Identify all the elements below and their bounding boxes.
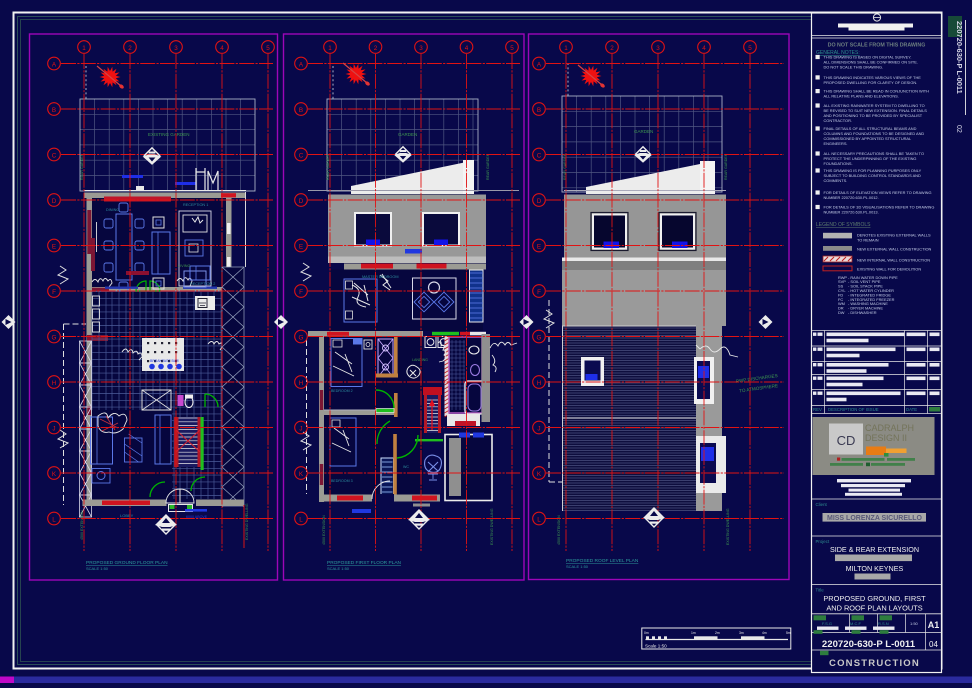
svg-text:4m: 4m bbox=[762, 631, 767, 635]
svg-text:SIDE & REAR EXTENSION: SIDE & REAR EXTENSION bbox=[830, 545, 919, 554]
svg-text:WC: WC bbox=[403, 465, 409, 469]
svg-text:COMMENTS.: COMMENTS. bbox=[824, 178, 848, 183]
svg-text:1: 1 bbox=[82, 45, 86, 52]
svg-text:NUMBER 220720.630.PL.0013.: NUMBER 220720.630.PL.0013. bbox=[824, 210, 879, 215]
svg-text:REAR GARDEN: REAR GARDEN bbox=[326, 153, 330, 180]
svg-text:REAR GARDEN: REAR GARDEN bbox=[724, 153, 728, 180]
svg-text:EXISTING DWELLING: EXISTING DWELLING bbox=[245, 503, 249, 540]
svg-text:GARDEN: GARDEN bbox=[634, 129, 653, 134]
svg-text:4: 4 bbox=[702, 45, 706, 52]
svg-text:REAR GARDEN: REAR GARDEN bbox=[80, 153, 84, 180]
svg-text:B: B bbox=[52, 107, 56, 114]
svg-text:EXISTING GARDEN: EXISTING GARDEN bbox=[148, 132, 190, 137]
svg-text:CONSTRUCTION: CONSTRUCTION bbox=[829, 658, 920, 669]
svg-text:1:50: 1:50 bbox=[910, 621, 919, 626]
svg-text:0m: 0m bbox=[644, 631, 649, 635]
svg-text:L: L bbox=[52, 517, 56, 524]
svg-text:CONTRACTOR.: CONTRACTOR. bbox=[824, 118, 852, 123]
svg-text:J: J bbox=[52, 426, 55, 433]
svg-text:SCALE 1:50: SCALE 1:50 bbox=[566, 564, 589, 569]
svg-text:R.S.N: R.S.N bbox=[878, 621, 889, 626]
svg-text:DATE: DATE bbox=[906, 407, 917, 412]
svg-text:ALL RELATIVE PLANS AND ELEVATI: ALL RELATIVE PLANS AND ELEVATIONS. bbox=[824, 94, 899, 99]
svg-text:BEDROOM 2: BEDROOM 2 bbox=[331, 389, 353, 393]
svg-text:04: 04 bbox=[929, 640, 938, 649]
svg-text:2: 2 bbox=[128, 45, 132, 52]
svg-text:2m: 2m bbox=[715, 631, 720, 635]
svg-text:MISS LORENZA SICURELLO: MISS LORENZA SICURELLO bbox=[827, 515, 923, 522]
svg-text:PROPOSED DWELLING FOR CLARITY: PROPOSED DWELLING FOR CLARITY OF DESIGN. bbox=[824, 80, 918, 85]
svg-text:H: H bbox=[52, 380, 57, 387]
svg-text:EXISTING DWELLING: EXISTING DWELLING bbox=[490, 508, 494, 545]
svg-text:F: F bbox=[52, 289, 56, 296]
svg-text:A1: A1 bbox=[928, 620, 940, 630]
svg-text:CD: CD bbox=[837, 433, 856, 448]
svg-text:NUMBER 220720.630.PL.0012.: NUMBER 220720.630.PL.0012. bbox=[824, 195, 879, 200]
svg-text:3m: 3m bbox=[739, 631, 744, 635]
svg-text:5m: 5m bbox=[786, 631, 791, 635]
svg-text:J: J bbox=[299, 426, 302, 433]
svg-text:C: C bbox=[537, 153, 542, 160]
svg-text:- DISHWASHER: - DISHWASHER bbox=[848, 310, 877, 315]
svg-text:H: H bbox=[299, 380, 304, 387]
svg-text:FOUNDATIONS.: FOUNDATIONS. bbox=[824, 161, 853, 166]
svg-text:2: 2 bbox=[610, 45, 614, 52]
svg-text:4500 EXTENSION: 4500 EXTENSION bbox=[80, 510, 84, 540]
svg-text:LOBBY: LOBBY bbox=[120, 513, 134, 518]
svg-text:M.C.F: M.C.F bbox=[850, 621, 861, 626]
svg-text:EXISTING DWELLING: EXISTING DWELLING bbox=[726, 508, 730, 545]
svg-text:1: 1 bbox=[328, 45, 332, 52]
svg-text:E: E bbox=[299, 244, 303, 251]
svg-text:4: 4 bbox=[465, 45, 469, 52]
svg-text:E: E bbox=[537, 244, 541, 251]
svg-text:B: B bbox=[537, 107, 541, 114]
svg-text:5: 5 bbox=[266, 45, 270, 52]
svg-text:D: D bbox=[537, 198, 542, 205]
svg-text:Scale 1:50: Scale 1:50 bbox=[645, 644, 667, 649]
svg-text:LANDING: LANDING bbox=[412, 358, 428, 362]
svg-text:DW: DW bbox=[838, 310, 845, 315]
svg-text:3: 3 bbox=[174, 45, 178, 52]
svg-text:LIVING: LIVING bbox=[178, 264, 190, 268]
svg-text:5: 5 bbox=[748, 45, 752, 52]
svg-text:3: 3 bbox=[656, 45, 660, 52]
svg-text:02: 02 bbox=[955, 125, 962, 133]
svg-text:G: G bbox=[52, 335, 57, 342]
svg-text:4500 EXTENSION: 4500 EXTENSION bbox=[557, 515, 561, 545]
svg-text:4500 EXTENSION: 4500 EXTENSION bbox=[322, 515, 326, 545]
svg-text:DO NOT SCALE THIS DRAWING.: DO NOT SCALE THIS DRAWING. bbox=[824, 65, 884, 70]
svg-text:F.S.G: F.S.G bbox=[822, 621, 832, 626]
svg-text:ENGINEERS.: ENGINEERS. bbox=[824, 141, 848, 146]
svg-text:G: G bbox=[537, 335, 542, 342]
svg-text:DO NOT SCALE FROM THIS DRAWING: DO NOT SCALE FROM THIS DRAWING bbox=[828, 43, 926, 49]
svg-text:J: J bbox=[537, 426, 540, 433]
svg-text:GARDEN: GARDEN bbox=[398, 132, 417, 137]
svg-text:G: G bbox=[299, 335, 304, 342]
svg-text:DESCRIPTION OF ISSUE: DESCRIPTION OF ISSUE bbox=[828, 407, 879, 412]
svg-text:EXISTING WALL FOR DEMOLITION: EXISTING WALL FOR DEMOLITION bbox=[857, 267, 921, 272]
svg-text:D: D bbox=[52, 198, 57, 205]
svg-text:5: 5 bbox=[510, 45, 514, 52]
svg-text:220720-630-P L-0011: 220720-630-P L-0011 bbox=[955, 21, 964, 94]
svg-text:E: E bbox=[52, 244, 56, 251]
svg-text:REV: REV bbox=[813, 407, 822, 412]
svg-text:C: C bbox=[299, 153, 304, 160]
svg-text:C: C bbox=[52, 153, 57, 160]
svg-text:CADRALPH: CADRALPH bbox=[865, 423, 914, 433]
svg-text:3: 3 bbox=[419, 45, 423, 52]
svg-text:4: 4 bbox=[220, 45, 224, 52]
svg-text:L: L bbox=[537, 517, 541, 524]
svg-text:BEDROOM 3: BEDROOM 3 bbox=[331, 479, 353, 483]
svg-text:Title: Title bbox=[816, 588, 825, 593]
svg-text:MASTER BEDROOM: MASTER BEDROOM bbox=[362, 275, 399, 279]
svg-text:220720-630-P L-0011: 220720-630-P L-0011 bbox=[822, 639, 916, 650]
svg-text:2: 2 bbox=[374, 45, 378, 52]
svg-text:TO REMAIN: TO REMAIN bbox=[857, 238, 879, 243]
svg-text:H: H bbox=[537, 380, 542, 387]
svg-text:PROPOSED GROUND, FIRST: PROPOSED GROUND, FIRST bbox=[823, 594, 926, 603]
svg-text:AND ROOF PLAN LAYOUTS: AND ROOF PLAN LAYOUTS bbox=[826, 604, 922, 613]
svg-text:D: D bbox=[299, 198, 304, 205]
svg-text:Client: Client bbox=[816, 502, 828, 507]
svg-text:SCALE 1:50: SCALE 1:50 bbox=[86, 566, 109, 571]
svg-text:Project: Project bbox=[816, 539, 830, 544]
svg-text:NEW EXTERNAL WALL CONSTRUCTION: NEW EXTERNAL WALL CONSTRUCTION bbox=[857, 247, 932, 252]
svg-text:RECEPTION 1: RECEPTION 1 bbox=[183, 203, 208, 207]
svg-text:B: B bbox=[299, 107, 303, 114]
svg-text:F: F bbox=[537, 289, 541, 296]
svg-text:REAR GARDEN: REAR GARDEN bbox=[486, 153, 490, 180]
svg-text:1: 1 bbox=[564, 45, 568, 52]
svg-text:BREAKFAST BAR: BREAKFAST BAR bbox=[150, 359, 179, 363]
svg-text:MILTON KEYNES: MILTON KEYNES bbox=[846, 564, 904, 573]
svg-text:1m: 1m bbox=[691, 631, 696, 635]
svg-text:NEW INTERNAL WALL CONSTRUCTION: NEW INTERNAL WALL CONSTRUCTION bbox=[857, 258, 930, 263]
svg-text:DESIGN II: DESIGN II bbox=[865, 433, 907, 443]
svg-text:SCALE 1:50: SCALE 1:50 bbox=[327, 566, 350, 571]
svg-text:DINING: DINING bbox=[106, 208, 119, 212]
svg-text:F: F bbox=[299, 289, 303, 296]
svg-text:LEGEND OF SYMBOLS: LEGEND OF SYMBOLS bbox=[816, 222, 871, 228]
svg-text:L: L bbox=[299, 517, 303, 524]
svg-text:RECEPTION 2: RECEPTION 2 bbox=[190, 282, 215, 286]
